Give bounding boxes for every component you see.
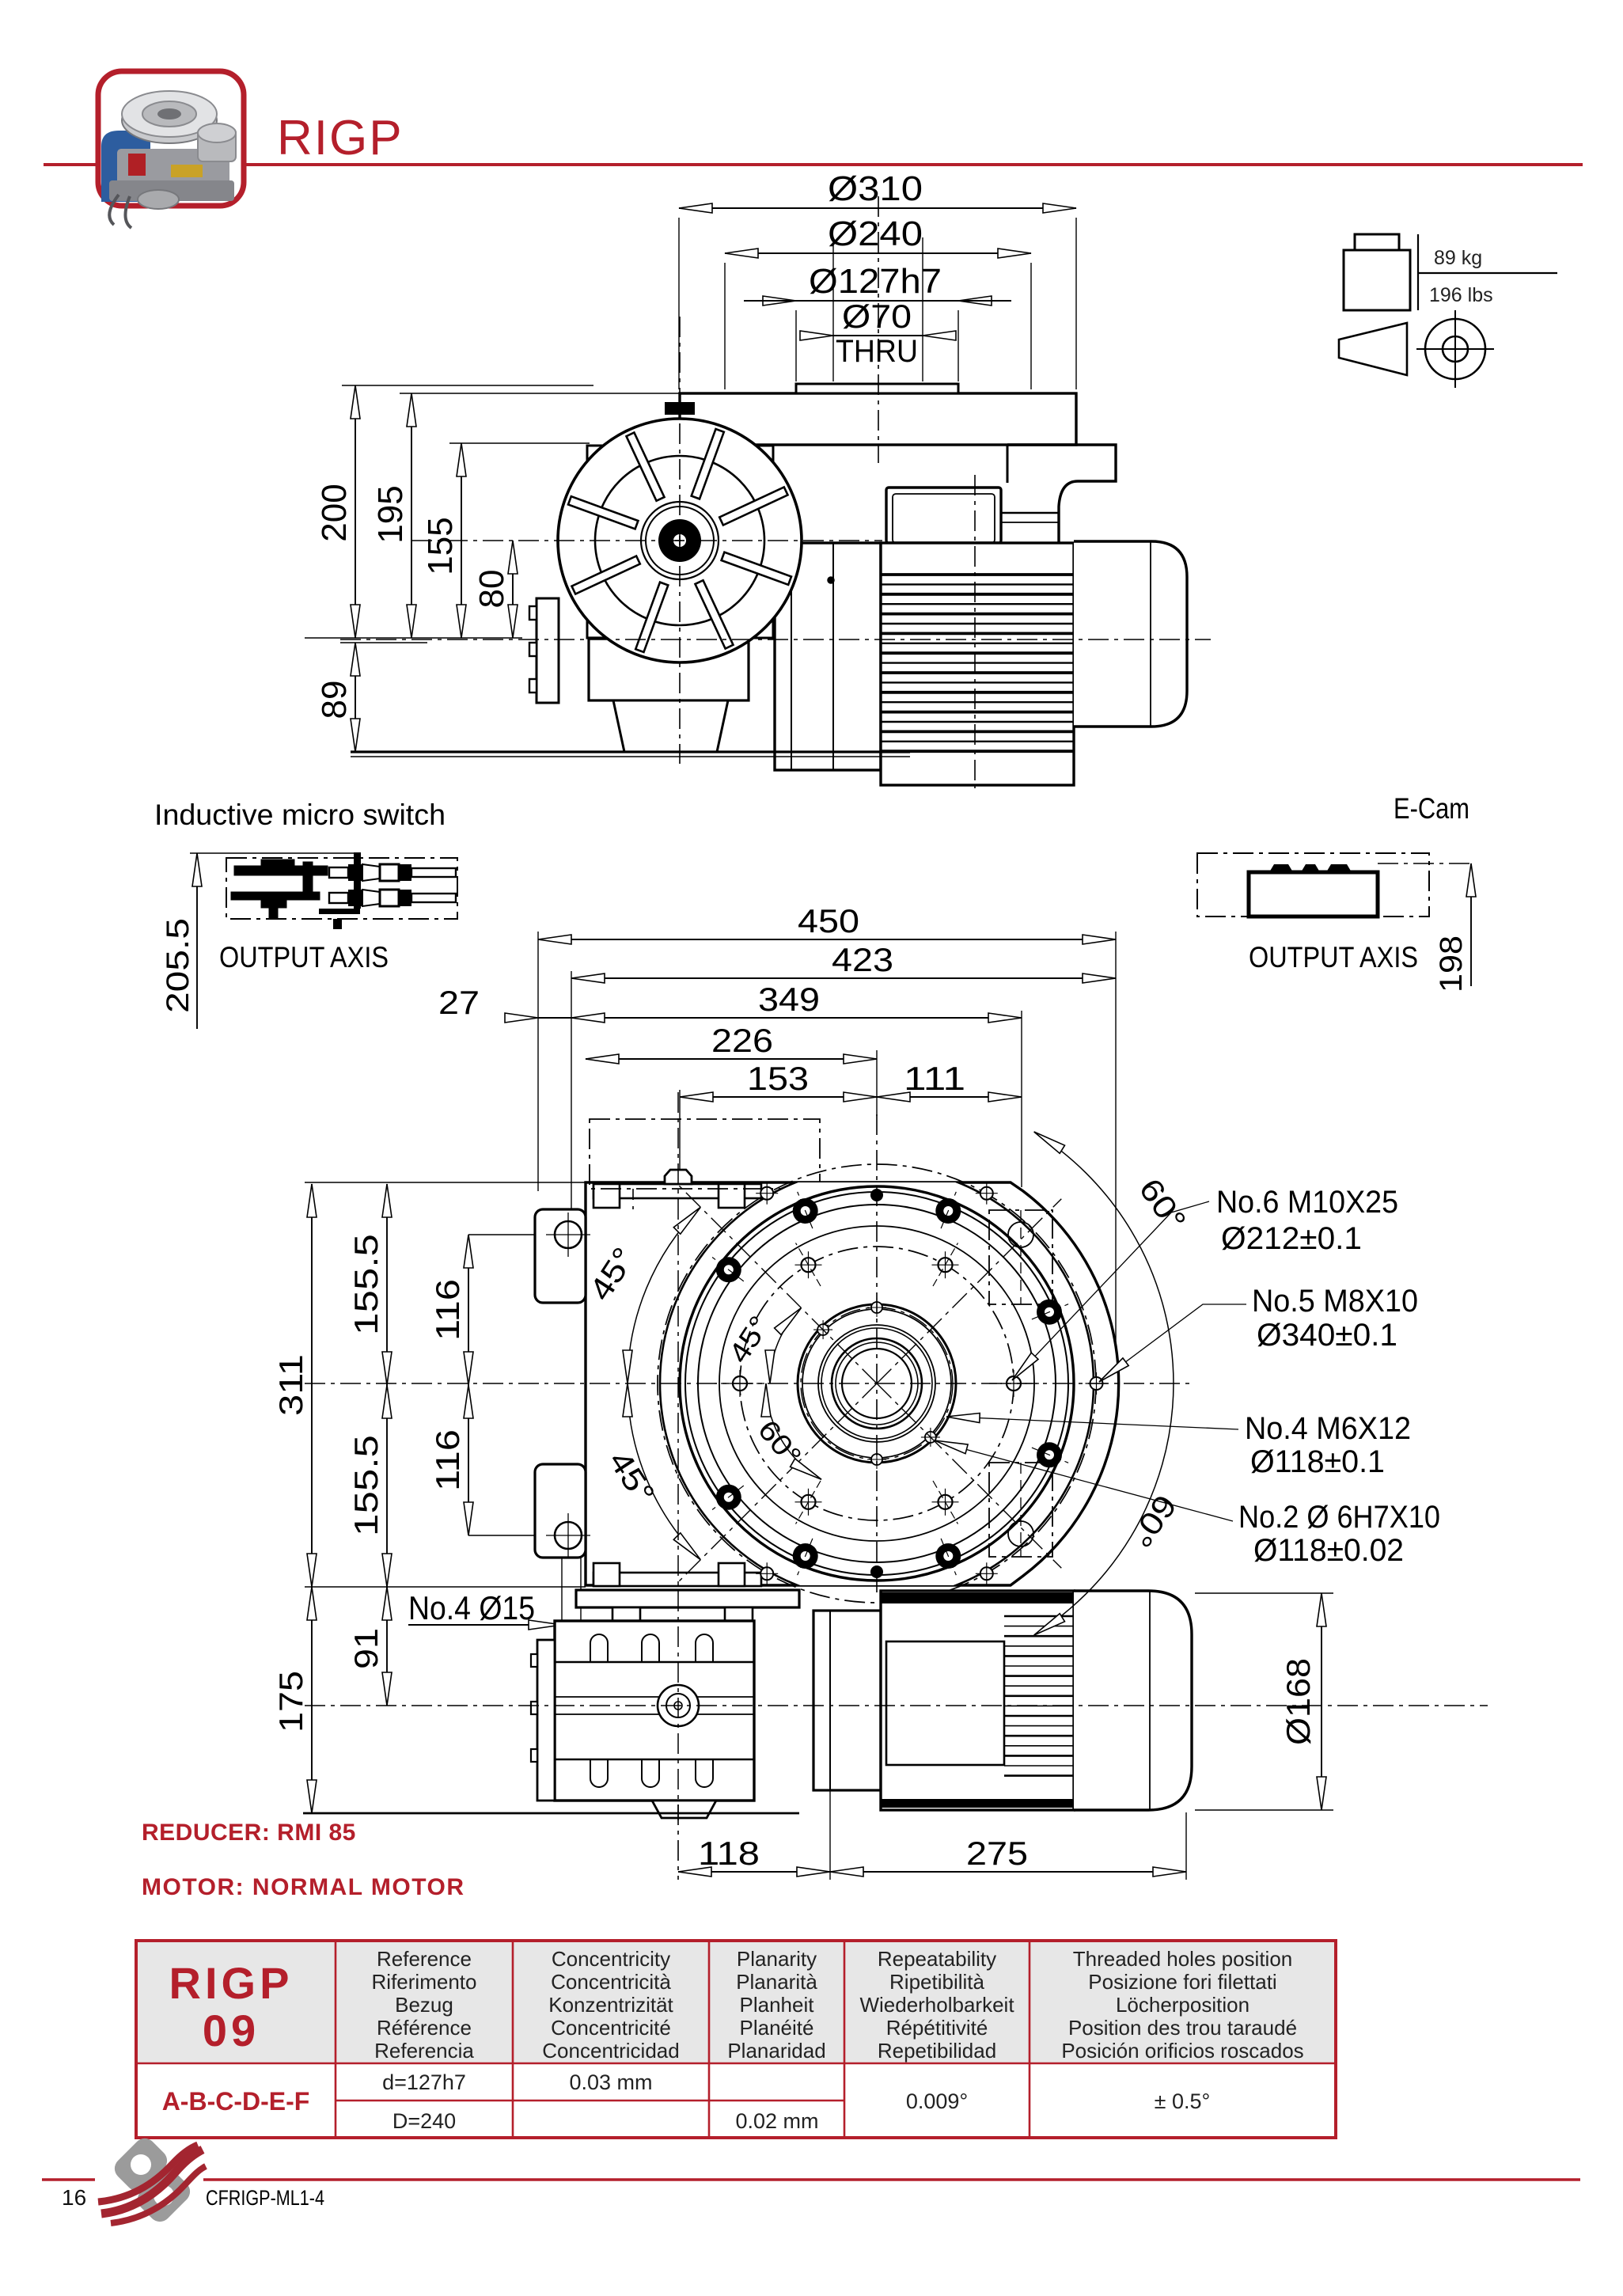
svg-text:0.02 mm: 0.02 mm [735,2109,818,2133]
svg-text:Ripetibilità: Ripetibilità [889,1970,984,1994]
svg-text:Löcherposition: Löcherposition [1116,1993,1249,2017]
svg-text:Position des trou taraudé: Position des trou taraudé [1068,2016,1297,2040]
svg-text:Concentricidad: Concentricidad [542,2039,679,2063]
svg-text:Planaridad: Planaridad [727,2039,825,2063]
svg-text:Ø240: Ø240 [828,214,923,253]
svg-text:Concentricity: Concentricity [552,1947,670,1971]
svg-text:205.5: 205.5 [161,918,195,1013]
svg-text:89: 89 [315,681,354,719]
svg-text:CFRIGP-ML1-4: CFRIGP-ML1-4 [206,2186,324,2210]
svg-text:195: 195 [371,485,410,543]
svg-text:THRU: THRU [836,334,918,369]
svg-text:REDUCER: RMI 85: REDUCER: RMI 85 [142,1820,356,1846]
svg-text:OUTPUT AXIS: OUTPUT AXIS [219,941,389,973]
svg-text:155.5: 155.5 [347,1435,385,1536]
svg-text:RIGP: RIGP [277,111,404,165]
svg-text:153: 153 [747,1060,809,1097]
svg-text:349: 349 [758,981,820,1018]
svg-text:116: 116 [429,1429,466,1491]
svg-text:27: 27 [438,984,480,1021]
svg-text:± 0.5°: ± 0.5° [1155,2089,1211,2113]
svg-text:No.6 M10X25: No.6 M10X25 [1216,1185,1398,1220]
svg-text:16: 16 [62,2185,86,2210]
svg-text:91: 91 [347,1628,385,1669]
svg-text:Ø340±0.1: Ø340±0.1 [1257,1318,1397,1353]
svg-text:OUTPUT AXIS: OUTPUT AXIS [1249,941,1418,973]
svg-text:80: 80 [472,570,511,609]
svg-text:116: 116 [429,1279,466,1341]
svg-text:RIGP: RIGP [169,1958,294,2008]
svg-text:Wiederholbarkeit: Wiederholbarkeit [859,1993,1014,2017]
svg-text:MOTOR: NORMAL MOTOR: MOTOR: NORMAL MOTOR [142,1874,465,1900]
svg-text:111: 111 [904,1060,965,1097]
svg-text:Konzentrizität: Konzentrizität [548,1993,673,2017]
svg-text:Ø168: Ø168 [1280,1658,1317,1745]
svg-text:423: 423 [832,941,893,978]
svg-text:311: 311 [272,1354,309,1416]
svg-text:175: 175 [272,1671,309,1732]
svg-text:Threaded holes position: Threaded holes position [1073,1947,1293,1971]
svg-text:155: 155 [421,517,460,575]
svg-text:Concentricité: Concentricité [551,2016,671,2040]
svg-text:A-B-C-D-E-F: A-B-C-D-E-F [162,2087,310,2116]
svg-text:226: 226 [711,1022,773,1059]
svg-text:09: 09 [203,2006,260,2055]
svg-text:200: 200 [315,484,354,541]
svg-text:89 kg: 89 kg [1434,247,1482,269]
svg-text:Riferimento: Riferimento [372,1970,477,1994]
svg-text:Posición orificios roscados: Posición orificios roscados [1061,2039,1303,2063]
svg-text:Ø70: Ø70 [842,298,912,335]
svg-text:Bezug: Bezug [395,1993,453,2017]
svg-text:60°: 60° [1123,1488,1183,1554]
svg-text:Ø118±0.02: Ø118±0.02 [1253,1533,1404,1568]
svg-text:Planarità: Planarità [736,1970,817,1994]
svg-text:Planarity: Planarity [737,1947,817,1971]
svg-text:Posizione fori filettati: Posizione fori filettati [1088,1970,1276,1994]
svg-text:60°: 60° [1132,1172,1193,1238]
svg-text:Referencia: Referencia [374,2039,474,2063]
svg-text:450: 450 [798,902,859,939]
svg-text:Planéité: Planéité [740,2016,814,2040]
svg-text:155.5: 155.5 [347,1234,385,1335]
svg-text:Planheit: Planheit [740,1993,815,2017]
svg-text:D=240: D=240 [392,2109,456,2133]
svg-text:No.5 M8X10: No.5 M8X10 [1252,1284,1418,1319]
svg-text:0.009°: 0.009° [906,2089,968,2113]
svg-text:Répétitivité: Répétitivité [886,2016,988,2040]
svg-text:Ø310: Ø310 [828,169,923,208]
svg-text:d=127h7: d=127h7 [382,2070,466,2094]
svg-text:196 lbs: 196 lbs [1429,284,1493,306]
svg-text:Repeatability: Repeatability [878,1947,996,1971]
svg-text:Reference: Reference [377,1947,472,1971]
svg-text:275: 275 [966,1835,1028,1872]
svg-text:Ø118±0.1: Ø118±0.1 [1250,1444,1385,1479]
svg-text:Ø127h7: Ø127h7 [809,262,942,301]
svg-text:0.03 mm: 0.03 mm [569,2070,652,2094]
svg-text:118: 118 [698,1835,760,1872]
svg-text:No.4 M6X12: No.4 M6X12 [1245,1411,1411,1446]
svg-text:Inductive micro switch: Inductive micro switch [154,799,446,831]
svg-text:Référence: Référence [377,2016,472,2040]
svg-text:No.4 Ø15: No.4 Ø15 [408,1589,535,1626]
svg-text:198: 198 [1434,935,1469,992]
svg-text:E-Cam: E-Cam [1394,792,1469,825]
svg-text:Ø212±0.1: Ø212±0.1 [1221,1221,1362,1256]
svg-text:Concentricità: Concentricità [551,1970,671,1994]
svg-text:Repetibilidad: Repetibilidad [878,2039,996,2063]
svg-text:No.2 Ø 6H7X10: No.2 Ø 6H7X10 [1238,1500,1440,1535]
